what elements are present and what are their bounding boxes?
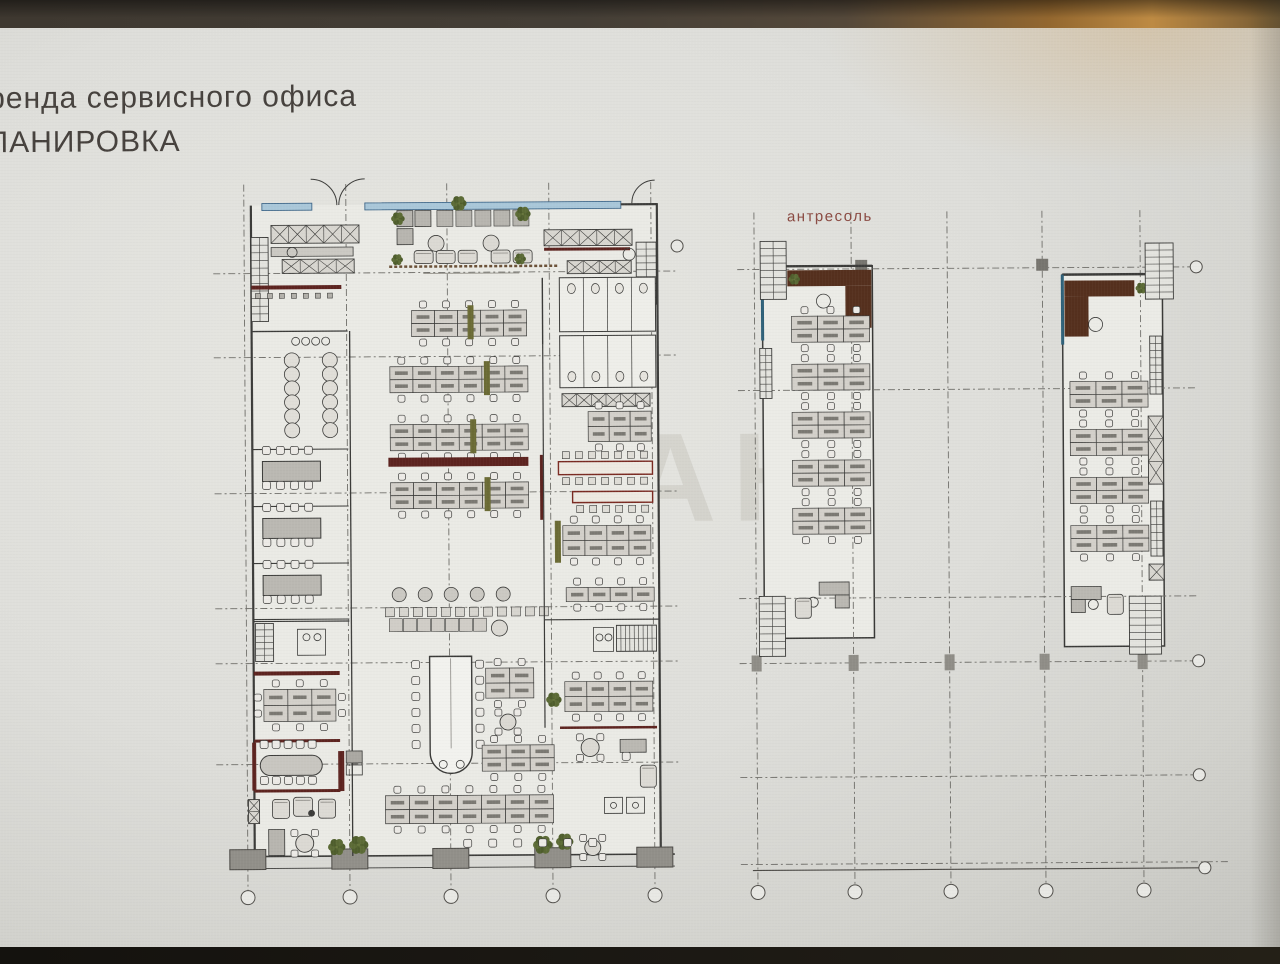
- plan-rect: [263, 518, 321, 538]
- wall-or-grid-line: [244, 185, 248, 891]
- plan-rect: [252, 743, 256, 791]
- stairs: [255, 623, 273, 661]
- sofa: [795, 598, 811, 618]
- plan-rect: [346, 751, 362, 763]
- plan-rect: [230, 850, 266, 870]
- locker-row: [1148, 416, 1163, 484]
- stairs: [251, 237, 269, 321]
- plan-rect: [945, 654, 955, 670]
- furniture-row: [389, 618, 486, 632]
- plan-rect: [388, 457, 528, 467]
- locker-row: [1149, 564, 1164, 580]
- plan-rect: [558, 461, 652, 475]
- wall-or-grid-line: [253, 621, 349, 622]
- plan-circle: [309, 810, 315, 816]
- desk-cluster: [792, 402, 870, 447]
- sofa: [640, 765, 656, 787]
- plan-rect: [397, 229, 413, 245]
- floor-plan-drawing: [0, 0, 1280, 964]
- desk-cluster: [482, 735, 554, 780]
- plan-rect: [555, 521, 561, 563]
- wall-or-grid-line: [740, 775, 1198, 778]
- desk-cluster: [791, 306, 869, 351]
- grid-axis-marker: [444, 889, 458, 903]
- plan-rect: [1036, 259, 1048, 271]
- stairs: [759, 596, 785, 656]
- wall-or-grid-line: [451, 658, 452, 748]
- desk-cluster: [792, 354, 870, 399]
- plan-path: [311, 179, 337, 205]
- sofa: [491, 250, 510, 263]
- grid-axis-marker: [671, 240, 683, 252]
- plan-rect: [573, 491, 653, 502]
- plan-rect: [467, 305, 473, 339]
- page-tilt-wrap: ренда сервисного офиса ЛАНИРОВКА ЦИАН ан…: [0, 23, 1280, 951]
- desk-cluster: [792, 450, 870, 495]
- grid-axis-marker: [1193, 655, 1205, 667]
- locker-row: [282, 259, 354, 273]
- wall-or-grid-line: [252, 331, 348, 332]
- plan-rect: [637, 847, 673, 867]
- wall-or-grid-line: [1042, 211, 1046, 888]
- wall-or-grid-line: [253, 619, 349, 620]
- locker-row: [248, 800, 259, 824]
- plan-circle: [491, 620, 507, 636]
- sofa: [272, 799, 289, 818]
- plan-circle: [418, 587, 432, 601]
- grid-axis-marker: [751, 885, 765, 899]
- plan-rect: [620, 739, 646, 752]
- furniture-row: [437, 210, 529, 227]
- plan-rect: [338, 751, 344, 791]
- stairs: [1151, 501, 1163, 556]
- wall-or-grid-line: [754, 213, 758, 890]
- grid-axis-marker: [343, 890, 357, 904]
- wall-or-grid-line: [753, 868, 1201, 871]
- plan-rect: [544, 247, 630, 251]
- desk-cluster: [1070, 372, 1148, 417]
- grid-axis-marker: [1039, 884, 1053, 898]
- sofa: [458, 250, 477, 263]
- plan-rect: [415, 210, 431, 226]
- furniture-row: [562, 451, 647, 459]
- grid-axis-marker: [1190, 261, 1202, 273]
- wall-or-grid-line: [544, 620, 545, 728]
- locker-row: [544, 229, 632, 246]
- plan-circle: [470, 587, 484, 601]
- plan-rect: [365, 201, 621, 210]
- stairs: [1129, 596, 1161, 654]
- stairs: [616, 625, 656, 651]
- photo-bottom-bezel: [0, 947, 1280, 964]
- sofa: [414, 250, 433, 263]
- plan-circle: [496, 587, 510, 601]
- plan-rect: [433, 848, 469, 868]
- wall-or-grid-line: [423, 273, 519, 274]
- grid-axis-marker: [546, 889, 560, 903]
- desk-cluster: [1070, 468, 1148, 513]
- grid-axis-marker: [1137, 883, 1151, 897]
- locker-row: [271, 225, 359, 244]
- stairs: [1145, 243, 1173, 299]
- grid-axis-marker: [1199, 862, 1211, 874]
- plan-circle: [428, 235, 444, 251]
- plan-rect: [1071, 586, 1101, 599]
- stairs: [760, 348, 772, 398]
- grid-axis-marker: [944, 884, 958, 898]
- locker-row: [567, 260, 631, 273]
- plan-rect: [262, 203, 312, 210]
- plan-rect: [819, 582, 849, 595]
- plan-rect: [752, 655, 762, 671]
- plan-rect: [1071, 600, 1085, 613]
- grid-axis-marker: [848, 885, 862, 899]
- furniture-row: [563, 477, 648, 485]
- sofa: [436, 250, 455, 263]
- plan-rect: [254, 789, 340, 793]
- plan-rect: [835, 595, 849, 608]
- plan-rect: [484, 477, 490, 511]
- grid-axis-marker: [241, 891, 255, 905]
- plan-rect: [849, 655, 859, 671]
- plan-path: [339, 179, 365, 205]
- plan-circle: [444, 587, 458, 601]
- plan-rect: [470, 419, 476, 453]
- plan-circle: [483, 235, 499, 251]
- plan-rect: [1138, 653, 1148, 669]
- plan-rect: [269, 829, 285, 855]
- stairs: [1150, 336, 1162, 394]
- plan-rect: [484, 361, 490, 395]
- desk-cluster: [1070, 420, 1148, 465]
- stairs: [760, 241, 786, 299]
- grid-axis-marker: [648, 888, 662, 902]
- wall-or-grid-line: [560, 727, 657, 728]
- wall-or-grid-line: [947, 211, 951, 888]
- plan-rect: [1040, 654, 1050, 670]
- plan-path: [632, 180, 655, 203]
- plan-rect: [1064, 280, 1134, 296]
- plan-rect: [787, 270, 871, 287]
- presentation-page: ренда сервисного офиса ЛАНИРОВКА ЦИАН ан…: [0, 28, 1280, 948]
- wall-or-grid-line: [741, 862, 1228, 865]
- plan-rect: [251, 285, 341, 290]
- plan-rect: [271, 247, 353, 257]
- grid-axis-marker: [1193, 769, 1205, 781]
- mezzanine-label: антресоль: [787, 208, 873, 226]
- plan-rect: [1064, 296, 1088, 336]
- sofa: [1107, 594, 1123, 614]
- wall-or-grid-line: [740, 661, 1198, 664]
- desk-cluster: [793, 498, 871, 543]
- wc-stalls: [560, 335, 656, 388]
- plan-rect: [260, 755, 322, 775]
- wc-stalls: [559, 277, 655, 332]
- plan-circle: [392, 588, 406, 602]
- plan-rect: [262, 461, 320, 481]
- chair-row: [622, 752, 630, 760]
- plan-rect: [254, 671, 340, 676]
- wall-or-grid-line: [544, 619, 659, 620]
- sofa: [318, 799, 335, 818]
- plan-rect: [263, 575, 321, 595]
- screen-photo: ренда сервисного офиса ЛАНИРОВКА ЦИАН ан…: [0, 0, 1280, 964]
- desk-cluster: [1071, 516, 1149, 561]
